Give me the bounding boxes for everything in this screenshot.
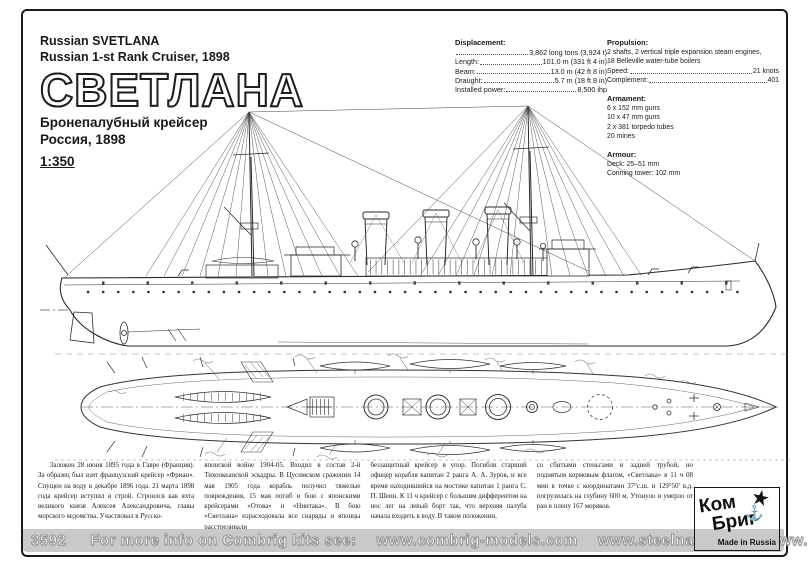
history-text-block: Заложен 28 июня 1895 года в Гавре (Франц… <box>38 461 693 533</box>
dotted-leader <box>630 73 752 74</box>
specs-displacement-block: Displacement: 3,862 long tons (3,924 t) … <box>455 38 607 94</box>
dotted-leader <box>456 54 528 55</box>
side-profile-drawing <box>28 95 784 355</box>
history-column-3: беззащитный крейсер в упор. Погибли стар… <box>371 461 527 533</box>
dotted-leader <box>480 64 542 65</box>
footer-bar: 3592 For more info on Combrig kits see: … <box>23 529 784 552</box>
history-column-1: Заложен 28 июня 1895 года в Гавре (Франц… <box>38 461 194 533</box>
spec-row: 3,862 long tons (3,924 t) <box>455 48 607 57</box>
kit-sheet-page: Russian SVETLANA Russian 1-st Rank Cruis… <box>0 0 808 571</box>
spec-row: Installed power:8,500 ihp <box>455 85 607 94</box>
kit-number: 3592 <box>31 532 66 549</box>
deck-plan-drawing <box>55 352 790 464</box>
kombrig-logo: Ком Бриг ★ ⚓ Made in Russia <box>694 487 780 551</box>
anchor-icon: ⚓ <box>745 504 764 522</box>
propulsion-heading: Propulsion: <box>607 38 779 47</box>
footer-info-text: For more info on Combrig kits see: <box>90 532 356 549</box>
displacement-heading: Displacement: <box>455 38 607 47</box>
title-english-line1: Russian SVETLANA <box>40 34 370 50</box>
dotted-leader <box>506 91 576 92</box>
dotted-leader <box>477 73 550 74</box>
footer-link-combrig: www.combrig-models.com <box>377 532 578 549</box>
spec-row: Complement:401 <box>607 76 779 85</box>
propulsion-line: 18 Belleville water-tube boilers <box>607 57 779 66</box>
made-in-russia-label: Made in Russia <box>718 538 776 547</box>
history-column-2: японской войне 1904-05. Входил в состав … <box>204 461 360 533</box>
spec-row: Speed:21 knots <box>607 67 779 76</box>
dotted-leader <box>649 82 767 83</box>
propulsion-line: 2 shafts, 2 vertical triple expansion st… <box>607 48 779 57</box>
spec-row: Beam:13.0 m (42 ft 8 in) <box>455 67 607 76</box>
dotted-leader <box>484 82 554 83</box>
spec-row: Draught:5.7 m (18 ft 8 in) <box>455 76 607 85</box>
title-english-line2: Russian 1-st Rank Cruiser, 1898 <box>40 50 370 66</box>
history-column-4: со сбитыми стеньгами и задней трубой, но… <box>537 461 693 533</box>
spec-row: Length:101.0 m (331 ft 4 in) <box>455 57 607 66</box>
